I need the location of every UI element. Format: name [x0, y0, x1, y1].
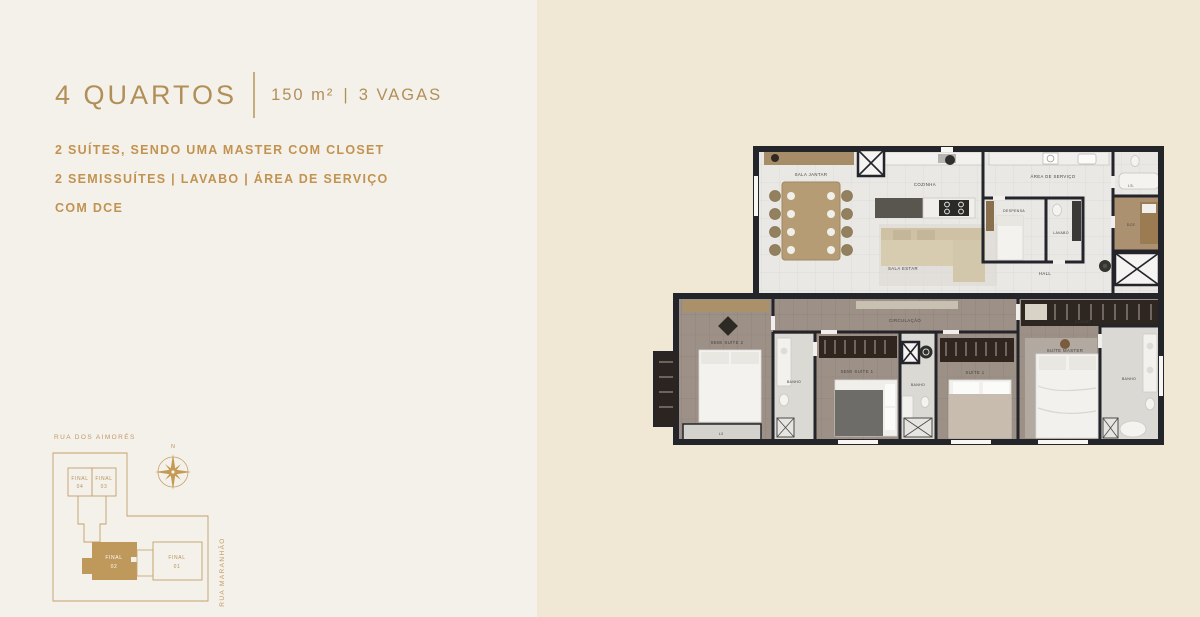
room-label-circulacao: CIRCULAÇÃO	[889, 318, 921, 323]
street-label-top: RUA DOS AIMORÉS	[54, 432, 136, 441]
room-label-is: I.S.	[1128, 184, 1135, 188]
room-label-semi-suite-1: SEMI SUÍTE 1	[841, 369, 874, 374]
room-label-sala-estar: SALA ESTAR	[888, 266, 918, 271]
room-label-closet: CLOSET	[1075, 320, 1092, 324]
dce-furniture	[1140, 202, 1158, 244]
suite-1-furniture	[940, 338, 1014, 438]
info-panel: 4 QUARTOS 150 m² | 3 VAGAS 2 SUÍTES, SEN…	[0, 0, 537, 617]
room-label-area-servico: ÁREA DE SERVIÇO	[1030, 174, 1075, 179]
unit-final-01-label: FINAL	[168, 555, 185, 561]
tower-stem-outline	[78, 496, 106, 542]
unit-final-01: FINAL 01	[153, 542, 202, 580]
unit-final-02-number: 02	[111, 564, 118, 570]
unit-final-03-number: 03	[101, 484, 108, 490]
room-label-hall: HALL	[1039, 271, 1052, 276]
feature-line-2: 2 SEMISSUÍTES | LAVABO | ÁREA DE SERVIÇO	[55, 172, 475, 186]
room-label-suite-master: SUÍTE MASTER	[1047, 348, 1084, 353]
title-block: 4 QUARTOS 150 m² | 3 VAGAS	[55, 72, 442, 118]
room-label-suite-1: SUÍTE 1	[965, 370, 984, 375]
compass-north-label: N	[171, 444, 175, 450]
page-title: 4 QUARTOS	[55, 80, 237, 111]
unit-final-02-label: FINAL	[105, 555, 122, 561]
unit-connector	[137, 550, 153, 576]
unit-final-03-label: FINAL	[95, 476, 112, 482]
room-label-lavabo: LAVABO	[1053, 231, 1069, 235]
subtitle: 150 m² | 3 VAGAS	[271, 86, 442, 105]
subtitle-separator: |	[343, 86, 349, 105]
room-label-sala-jantar: SALA JANTAR	[795, 172, 828, 177]
unit-final-04-label: FINAL	[71, 476, 88, 482]
room-label-banho-1: BANHO	[787, 380, 801, 384]
room-label-dce: DCE	[1127, 223, 1136, 227]
street-label-right: RUA MARANHÃO	[217, 537, 226, 607]
unit-final-02: FINAL 02	[82, 542, 138, 580]
unit-final-03: FINAL 03	[92, 468, 116, 496]
compass-icon: N	[155, 444, 191, 490]
feature-list: 2 SUÍTES, SENDO UMA MASTER COM CLOSET 2 …	[55, 143, 475, 230]
hall-plant	[1099, 260, 1111, 272]
room-label-banho-master: BANHO	[1122, 377, 1136, 381]
subtitle-parking: 3 VAGAS	[359, 86, 442, 105]
room-label-despensa: DESPENSA	[1003, 209, 1025, 213]
unit-final-04-number: 04	[77, 484, 84, 490]
feature-line-3: COM DCE	[55, 201, 475, 215]
corridor-console	[856, 301, 958, 309]
room-label-semi-suite-2: SEMI SUÍTE 2	[711, 340, 744, 345]
unit-final-01-number: 01	[174, 564, 181, 570]
room-label-cozinha: COZINHA	[914, 182, 936, 187]
floor-plan: SALA JANTAR COZINHA ÁREA DE SERVIÇO DESP…	[653, 146, 1168, 451]
feature-line-1: 2 SUÍTES, SENDO UMA MASTER COM CLOSET	[55, 143, 475, 157]
room-label-banho-2: BANHO	[911, 383, 925, 387]
subtitle-area: 150 m²	[271, 86, 334, 105]
living-room-furniture	[879, 224, 997, 286]
title-divider	[253, 72, 255, 118]
room-label-l3: L3	[719, 432, 724, 436]
service-area-furniture	[989, 152, 1109, 165]
site-key-plan: RUA DOS AIMORÉS N FINAL 04 FINAL 03	[40, 428, 240, 610]
unit-final-04: FINAL 04	[68, 468, 92, 496]
